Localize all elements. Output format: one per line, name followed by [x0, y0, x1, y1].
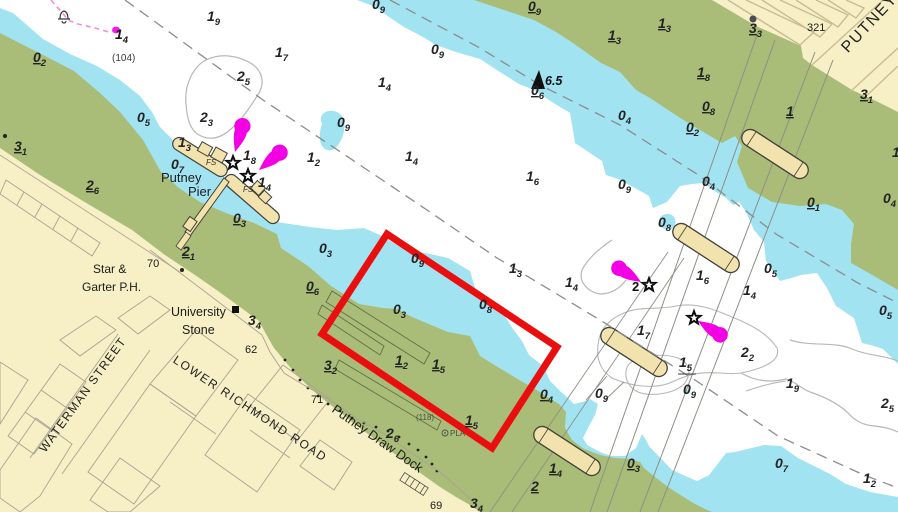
svg-text:2: 2: [632, 279, 639, 294]
svg-text:1: 1: [786, 103, 794, 119]
svg-text:Garter P.H.: Garter P.H.: [82, 280, 141, 294]
svg-text:6.5: 6.5: [545, 74, 563, 88]
svg-text:(118): (118): [416, 413, 434, 422]
svg-text:Stone: Stone: [182, 323, 215, 337]
svg-text:Putney: Putney: [161, 170, 202, 185]
svg-text:69: 69: [430, 500, 442, 512]
svg-text:University: University: [171, 305, 227, 319]
svg-text:2: 2: [530, 478, 539, 494]
svg-text:62: 62: [245, 344, 257, 356]
svg-text:(104): (104): [112, 53, 135, 64]
svg-text:PLA: PLA: [450, 429, 466, 438]
svg-text:FS: FS: [206, 158, 217, 167]
svg-text:FS: FS: [243, 185, 254, 194]
svg-text:Pier: Pier: [188, 184, 212, 199]
svg-text:71: 71: [311, 394, 323, 406]
svg-text:321: 321: [807, 22, 825, 34]
svg-text:Star &: Star &: [93, 262, 126, 276]
svg-text:70: 70: [147, 258, 159, 270]
